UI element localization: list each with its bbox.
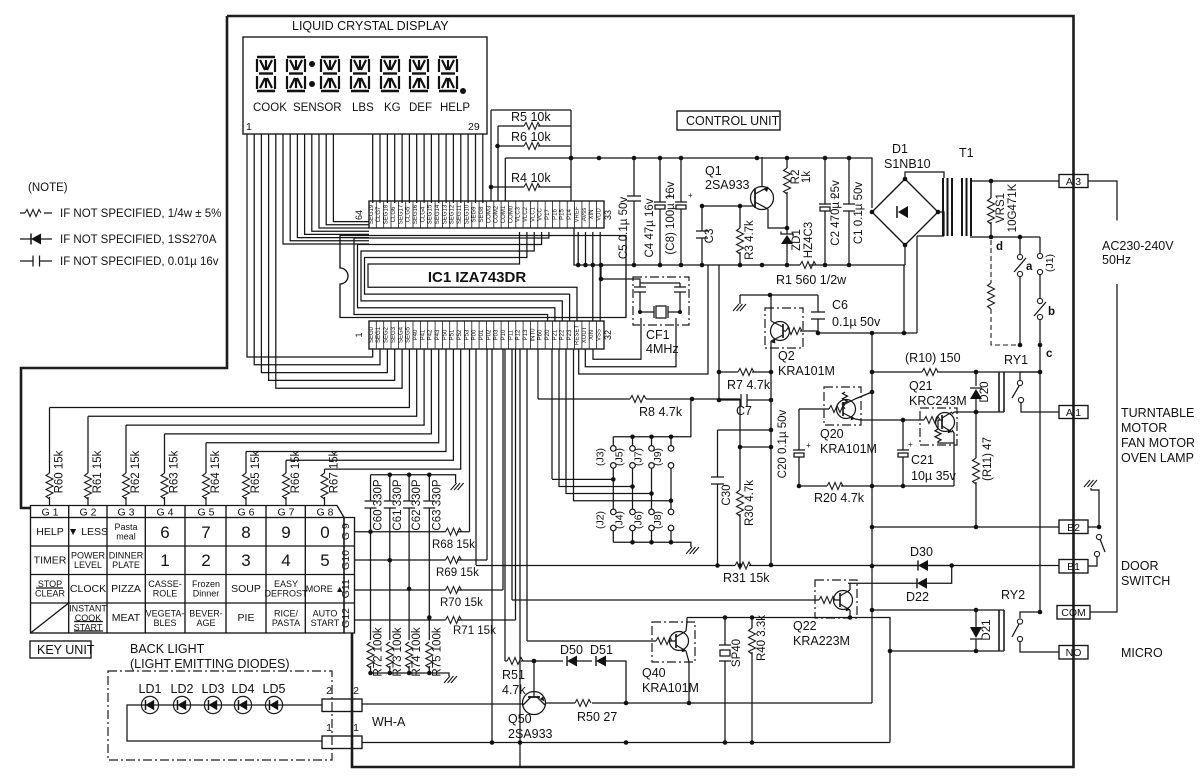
svg-text:KRA101M: KRA101M xyxy=(820,442,877,456)
svg-text:5: 5 xyxy=(320,551,329,570)
svg-text:IF NOT SPECIFIED, 0.01µ 16v: IF NOT SPECIFIED, 0.01µ 16v xyxy=(60,256,219,268)
svg-text:HZ4C3: HZ4C3 xyxy=(803,222,815,258)
svg-text:D51: D51 xyxy=(590,643,613,657)
svg-text:C6: C6 xyxy=(832,298,848,312)
svg-text:R68 15k: R68 15k xyxy=(432,539,475,551)
svg-text:SEG10: SEG10 xyxy=(464,204,470,224)
svg-text:KRA223M: KRA223M xyxy=(793,634,850,648)
svg-text:PASTA: PASTA xyxy=(272,618,300,628)
svg-text:2: 2 xyxy=(326,685,332,697)
svg-text:C62 330P: C62 330P xyxy=(411,479,423,530)
svg-text:3: 3 xyxy=(241,551,250,570)
svg-text:(J9): (J9) xyxy=(652,448,664,466)
svg-text:P23: P23 xyxy=(567,329,573,340)
svg-text:R1 560 1/2w: R1 560 1/2w xyxy=(776,273,847,287)
svg-text:LEVEL: LEVEL xyxy=(74,560,102,570)
svg-text:d: d xyxy=(996,241,1003,253)
svg-text:P20: P20 xyxy=(545,329,551,340)
svg-text:meal: meal xyxy=(116,532,136,542)
svg-text:VREF: VREF xyxy=(574,206,580,222)
svg-text:MORE ▲: MORE ▲ xyxy=(306,584,344,594)
svg-text:LBS: LBS xyxy=(352,102,374,114)
svg-text:START: START xyxy=(311,618,340,628)
svg-text:IF NOT SPECIFIED, 1SS270A: IF NOT SPECIFIED, 1SS270A xyxy=(60,234,217,246)
svg-text:COM2: COM2 xyxy=(494,205,500,223)
svg-text:R30 4.7k: R30 4.7k xyxy=(744,480,756,526)
svg-text:Q21: Q21 xyxy=(909,379,933,393)
svg-text:(LIGHT EMITTING DIODES): (LIGHT EMITTING DIODES) xyxy=(130,657,290,671)
svg-text:(R10) 150: (R10) 150 xyxy=(905,351,961,365)
svg-text:ZD1: ZD1 xyxy=(791,229,803,251)
svg-text:R66 15k: R66 15k xyxy=(290,450,302,493)
svg-text:KEY UNIT: KEY UNIT xyxy=(37,643,95,657)
svg-text:R60 15k: R60 15k xyxy=(54,450,66,493)
svg-text:2SA933: 2SA933 xyxy=(705,178,750,192)
svg-text:B2: B2 xyxy=(1067,522,1080,534)
svg-text:Q50: Q50 xyxy=(508,712,532,726)
svg-text:RY1: RY1 xyxy=(1004,353,1028,367)
svg-text:VSS: VSS xyxy=(596,329,602,341)
svg-text:P13: P13 xyxy=(523,329,529,340)
svg-text:R63 15k: R63 15k xyxy=(169,450,181,493)
svg-text:R61 15k: R61 15k xyxy=(92,450,104,493)
svg-text:R69 15k: R69 15k xyxy=(436,567,479,579)
svg-text:COM1: COM1 xyxy=(501,205,507,223)
svg-text:4.7k: 4.7k xyxy=(502,683,526,697)
svg-text:50Hz: 50Hz xyxy=(1102,253,1131,267)
svg-text:KG: KG xyxy=(384,102,401,114)
svg-text:1: 1 xyxy=(353,722,359,734)
svg-text:P03: P03 xyxy=(494,329,500,340)
svg-text:T1: T1 xyxy=(959,146,974,160)
svg-text:P11: P11 xyxy=(508,329,514,340)
svg-text:10G471K: 10G471K xyxy=(1007,183,1019,232)
svg-text:C63 330P: C63 330P xyxy=(431,479,443,530)
svg-text:VLC2: VLC2 xyxy=(523,206,529,222)
svg-text:DEFROST: DEFROST xyxy=(264,589,308,599)
svg-text:WH-A: WH-A xyxy=(372,715,406,729)
svg-text:(R11) 47: (R11) 47 xyxy=(982,437,994,481)
svg-text:CLOCK: CLOCK xyxy=(70,583,106,595)
svg-text:29: 29 xyxy=(468,121,480,133)
svg-text:PIE: PIE xyxy=(238,612,255,624)
svg-text:(J2): (J2) xyxy=(594,511,606,529)
svg-text:+: + xyxy=(688,191,693,200)
svg-text:B1: B1 xyxy=(1067,561,1080,573)
svg-text:VRS1: VRS1 xyxy=(995,193,1007,223)
svg-text:HELP: HELP xyxy=(36,526,63,538)
svg-text:RICE/: RICE/ xyxy=(274,609,299,619)
svg-text:RESET: RESET xyxy=(574,325,580,345)
svg-text:COOK: COOK xyxy=(253,102,287,114)
svg-text:(NOTE): (NOTE) xyxy=(28,182,68,194)
svg-text:SEG12: SEG12 xyxy=(450,204,456,224)
svg-text:D50: D50 xyxy=(560,643,583,657)
svg-text:SEG13: SEG13 xyxy=(442,204,448,224)
svg-text:9: 9 xyxy=(281,523,290,542)
svg-text:1k: 1k xyxy=(801,171,813,183)
svg-text:A 3: A 3 xyxy=(1066,176,1081,188)
svg-text:(J8): (J8) xyxy=(652,511,664,529)
svg-text:LD2: LD2 xyxy=(171,682,194,696)
svg-text:R20 4.7k: R20 4.7k xyxy=(814,491,865,505)
svg-text:C60 330P: C60 330P xyxy=(373,479,385,530)
svg-text:CLG5: CLG5 xyxy=(406,206,412,222)
svg-text:SEG16: SEG16 xyxy=(413,204,419,224)
svg-text:P60: P60 xyxy=(538,329,544,340)
svg-text:32: 32 xyxy=(603,330,613,340)
svg-text:CLG6: CLG6 xyxy=(391,206,397,222)
svg-text:LIQUID CRYSTAL DISPLAY: LIQUID CRYSTAL DISPLAY xyxy=(292,19,449,33)
svg-text:SEG0: SEG0 xyxy=(369,326,375,343)
svg-text:R50 27: R50 27 xyxy=(577,710,617,724)
svg-text:D1: D1 xyxy=(892,142,908,156)
svg-text:PIZZA: PIZZA xyxy=(111,583,141,595)
svg-text:P22: P22 xyxy=(560,329,566,340)
svg-text:R71 15k: R71 15k xyxy=(453,625,496,637)
svg-text:P17: P17 xyxy=(545,209,551,220)
svg-text:G 5: G 5 xyxy=(198,507,215,519)
svg-text:R8 4.7k: R8 4.7k xyxy=(639,405,683,419)
svg-text:G 4: G 4 xyxy=(157,507,174,519)
svg-text:2: 2 xyxy=(353,685,359,697)
svg-text:2SA933: 2SA933 xyxy=(508,727,553,741)
svg-text:VDD: VDD xyxy=(596,208,602,221)
svg-text:8: 8 xyxy=(241,523,250,542)
svg-text:1: 1 xyxy=(246,121,252,133)
svg-text:CLG7: CLG7 xyxy=(376,206,382,222)
svg-text:1: 1 xyxy=(326,722,332,734)
svg-text:EASY: EASY xyxy=(274,579,298,589)
svg-text:S1NB10: S1NB10 xyxy=(884,157,931,171)
svg-text:CLG4: CLG4 xyxy=(420,206,426,222)
svg-text:AGE: AGE xyxy=(196,618,215,628)
svg-text:R73 100k: R73 100k xyxy=(392,627,404,676)
svg-text:SEG5: SEG5 xyxy=(406,326,412,343)
svg-text:DOOR: DOOR xyxy=(1121,559,1159,573)
svg-text:POWER: POWER xyxy=(71,551,106,561)
svg-text:AVss: AVss xyxy=(582,208,588,222)
svg-text:b: b xyxy=(1048,306,1055,318)
svg-text:(J3): (J3) xyxy=(594,448,606,466)
svg-text:C2 470µ 25v: C2 470µ 25v xyxy=(830,180,842,246)
svg-text:LD1: LD1 xyxy=(139,682,162,696)
svg-text:R6 10k: R6 10k xyxy=(511,130,551,144)
svg-text:KRA101M: KRA101M xyxy=(642,681,699,695)
svg-text:SEG1: SEG1 xyxy=(376,326,382,343)
svg-text:P51: P51 xyxy=(450,329,456,340)
svg-text:P43: P43 xyxy=(435,329,441,340)
svg-text:R72 100k: R72 100k xyxy=(373,627,385,676)
svg-text:CLEAR: CLEAR xyxy=(35,589,66,599)
svg-text:C7: C7 xyxy=(736,404,752,418)
svg-text:(J6): (J6) xyxy=(633,511,645,529)
svg-text:R5 10k: R5 10k xyxy=(511,110,551,124)
svg-text:COM3: COM3 xyxy=(486,205,492,223)
svg-text:AUTO: AUTO xyxy=(313,609,338,619)
svg-text:64: 64 xyxy=(354,210,364,220)
svg-text:C30: C30 xyxy=(721,484,733,505)
svg-text:D20: D20 xyxy=(979,381,991,402)
svg-text:+: + xyxy=(806,441,811,450)
svg-text:P41: P41 xyxy=(420,329,426,340)
svg-text:P52: P52 xyxy=(457,329,463,340)
svg-text:INT0: INT0 xyxy=(530,328,536,342)
svg-text:G11: G11 xyxy=(340,579,352,598)
svg-text:P42: P42 xyxy=(428,329,434,340)
svg-text:A 1: A 1 xyxy=(1066,407,1081,419)
svg-text:MICRO: MICRO xyxy=(1121,646,1163,660)
svg-text:OVEN LAMP: OVEN LAMP xyxy=(1121,451,1194,465)
svg-text:G 2: G 2 xyxy=(80,507,97,519)
svg-text:R62 15k: R62 15k xyxy=(130,450,142,493)
svg-text:G 9: G 9 xyxy=(340,523,352,540)
svg-text:Q40: Q40 xyxy=(642,666,666,680)
svg-text:G 7: G 7 xyxy=(278,507,295,519)
svg-text:ROLE: ROLE xyxy=(153,589,178,599)
svg-text:a: a xyxy=(1026,261,1033,273)
svg-text:R51: R51 xyxy=(502,668,525,682)
svg-text:R75 100k: R75 100k xyxy=(431,627,443,676)
svg-text:0: 0 xyxy=(320,523,329,542)
svg-text:SEG11: SEG11 xyxy=(457,204,463,224)
svg-text:SEG18: SEG18 xyxy=(384,204,390,224)
svg-text:PLATE: PLATE xyxy=(112,560,140,570)
svg-text:LD5: LD5 xyxy=(263,682,286,696)
svg-text:DINNER: DINNER xyxy=(109,551,144,561)
svg-text:R67 15k: R67 15k xyxy=(329,450,341,493)
svg-text:VLC1: VLC1 xyxy=(530,206,536,222)
svg-text:BLES: BLES xyxy=(153,618,176,628)
svg-text:C21: C21 xyxy=(911,453,934,467)
svg-text:LD3: LD3 xyxy=(202,682,225,696)
svg-text:(C8) 100µ 16v: (C8) 100µ 16v xyxy=(665,181,677,254)
svg-text:TURNTABLE: TURNTABLE xyxy=(1121,406,1194,420)
svg-text:C1 0.1µ 50v: C1 0.1µ 50v xyxy=(853,182,865,244)
svg-text:6: 6 xyxy=(160,523,169,542)
svg-text:KRA101M: KRA101M xyxy=(778,364,835,378)
svg-text:NO: NO xyxy=(1066,647,1082,659)
svg-text:Q22: Q22 xyxy=(793,619,817,633)
svg-text:C5 0.1µ 50v: C5 0.1µ 50v xyxy=(618,197,630,259)
svg-text:R70 15k: R70 15k xyxy=(440,597,483,609)
svg-text:P16: P16 xyxy=(552,209,558,220)
svg-text:G 1: G 1 xyxy=(42,507,59,519)
svg-text:P02: P02 xyxy=(486,329,492,340)
svg-text:D30: D30 xyxy=(910,545,933,559)
svg-text:C61 330P: C61 330P xyxy=(392,479,404,530)
svg-text:SENSOR: SENSOR xyxy=(293,102,342,114)
svg-text:Q2: Q2 xyxy=(778,349,795,363)
svg-text:▼ LESS: ▼ LESS xyxy=(68,526,108,538)
svg-text:FAN MOTOR: FAN MOTOR xyxy=(1121,436,1195,450)
svg-text:SOUP: SOUP xyxy=(231,583,261,595)
svg-text:4MHz: 4MHz xyxy=(646,342,679,356)
svg-text:R4 10k: R4 10k xyxy=(511,171,551,185)
svg-text:VLC3: VLC3 xyxy=(516,206,522,222)
svg-text:P00: P00 xyxy=(472,329,478,340)
svg-text:SEG8: SEG8 xyxy=(479,206,485,223)
svg-text:SEG17: SEG17 xyxy=(398,204,404,224)
svg-text:SEG14: SEG14 xyxy=(435,204,441,224)
svg-text:1: 1 xyxy=(354,332,364,337)
svg-text:G 8: G 8 xyxy=(317,507,334,519)
svg-text:C4 47µ 16v: C4 47µ 16v xyxy=(644,198,656,257)
svg-text:R74 100k: R74 100k xyxy=(411,627,423,676)
svg-text:BACK LIGHT: BACK LIGHT xyxy=(130,642,205,656)
svg-text:VEGETA-: VEGETA- xyxy=(146,609,185,619)
svg-text:COM: COM xyxy=(1061,607,1086,619)
svg-text:MOTOR: MOTOR xyxy=(1121,421,1167,435)
svg-text:SP40: SP40 xyxy=(731,639,743,667)
svg-text:C3: C3 xyxy=(704,229,716,244)
svg-text:INSTANT: INSTANT xyxy=(69,604,107,614)
svg-text:LD4: LD4 xyxy=(232,682,255,696)
svg-text:SEG4: SEG4 xyxy=(398,326,404,343)
svg-text:P53: P53 xyxy=(464,329,470,340)
svg-text:SEG15: SEG15 xyxy=(428,204,434,224)
svg-text:P01: P01 xyxy=(479,329,485,340)
svg-text:4: 4 xyxy=(281,551,290,570)
svg-text:R65 15k: R65 15k xyxy=(250,450,262,493)
svg-text:(J1): (J1) xyxy=(1044,254,1056,272)
svg-text:P14: P14 xyxy=(567,209,573,220)
svg-text:SEG9: SEG9 xyxy=(472,206,478,223)
svg-text:XIN: XIN xyxy=(589,330,595,340)
svg-text:CONTROL UNIT: CONTROL UNIT xyxy=(686,114,780,128)
svg-text:(J5): (J5) xyxy=(614,448,626,466)
svg-text:P21: P21 xyxy=(552,329,558,340)
svg-text:DEF: DEF xyxy=(409,102,432,114)
svg-text:XIN: XIN xyxy=(589,209,595,219)
svg-text:D22: D22 xyxy=(906,590,929,604)
svg-text:R64 15k: R64 15k xyxy=(210,450,222,493)
svg-text:Dinner: Dinner xyxy=(193,589,220,599)
svg-text:(J4): (J4) xyxy=(614,511,626,529)
svg-text:P12: P12 xyxy=(516,329,522,340)
svg-text:1: 1 xyxy=(160,551,169,570)
svg-text:SEG3: SEG3 xyxy=(391,326,397,343)
svg-text:+: + xyxy=(908,440,913,449)
svg-text:Q20: Q20 xyxy=(820,427,844,441)
svg-text:(J7): (J7) xyxy=(633,448,645,466)
svg-text:P40: P40 xyxy=(413,329,419,340)
svg-text:7: 7 xyxy=(201,523,210,542)
svg-text:COM0: COM0 xyxy=(508,205,514,223)
svg-text:10µ 35v: 10µ 35v xyxy=(911,469,956,483)
svg-text:R31 15k: R31 15k xyxy=(723,571,770,585)
svg-text:G10: G10 xyxy=(340,550,352,570)
svg-text:Q1: Q1 xyxy=(705,164,722,178)
svg-text:P15: P15 xyxy=(560,209,566,220)
svg-text:D21: D21 xyxy=(981,619,993,640)
svg-text:2: 2 xyxy=(201,551,210,570)
svg-text:CASSE-: CASSE- xyxy=(148,579,182,589)
svg-text:R7 4.7k: R7 4.7k xyxy=(727,378,771,392)
svg-text:SEG19: SEG19 xyxy=(369,204,375,224)
svg-text:TIMER: TIMER xyxy=(34,555,67,567)
svg-text:C20 0.1µ 50v: C20 0.1µ 50v xyxy=(777,409,789,478)
svg-text:c: c xyxy=(1046,348,1053,360)
svg-text:SWITCH: SWITCH xyxy=(1121,574,1170,588)
svg-text:SEG2: SEG2 xyxy=(384,326,390,343)
svg-text:P10: P10 xyxy=(501,329,507,340)
svg-text:AC230-240V: AC230-240V xyxy=(1102,239,1174,253)
svg-text:VCC: VCC xyxy=(538,208,544,221)
svg-text:RY2: RY2 xyxy=(1001,588,1025,602)
svg-text:G 6: G 6 xyxy=(238,507,255,519)
svg-text:0.1µ 50v: 0.1µ 50v xyxy=(832,315,881,329)
svg-text:R3 4.7k: R3 4.7k xyxy=(744,220,756,260)
svg-text:G 3: G 3 xyxy=(118,507,135,519)
svg-text:33: 33 xyxy=(603,210,613,220)
svg-text:P50: P50 xyxy=(442,329,448,340)
svg-text:CF1: CF1 xyxy=(646,328,670,342)
svg-text:XOUT: XOUT xyxy=(582,326,588,343)
svg-text:IF NOT SPECIFIED, 1/4w ± 5%: IF NOT SPECIFIED, 1/4w ± 5% xyxy=(60,208,221,220)
svg-text:G12: G12 xyxy=(340,608,352,628)
svg-text:R40 3.3k: R40 3.3k xyxy=(756,615,768,661)
svg-text:IC1 IZA743DR: IC1 IZA743DR xyxy=(428,269,527,286)
svg-text:Frozen: Frozen xyxy=(192,579,220,589)
svg-text:HELP: HELP xyxy=(440,102,470,114)
svg-text:KRC243M: KRC243M xyxy=(909,394,967,408)
svg-text:BEVER-: BEVER- xyxy=(189,609,223,619)
svg-text:Pasta: Pasta xyxy=(114,522,137,532)
svg-text:MEAT: MEAT xyxy=(112,612,141,624)
